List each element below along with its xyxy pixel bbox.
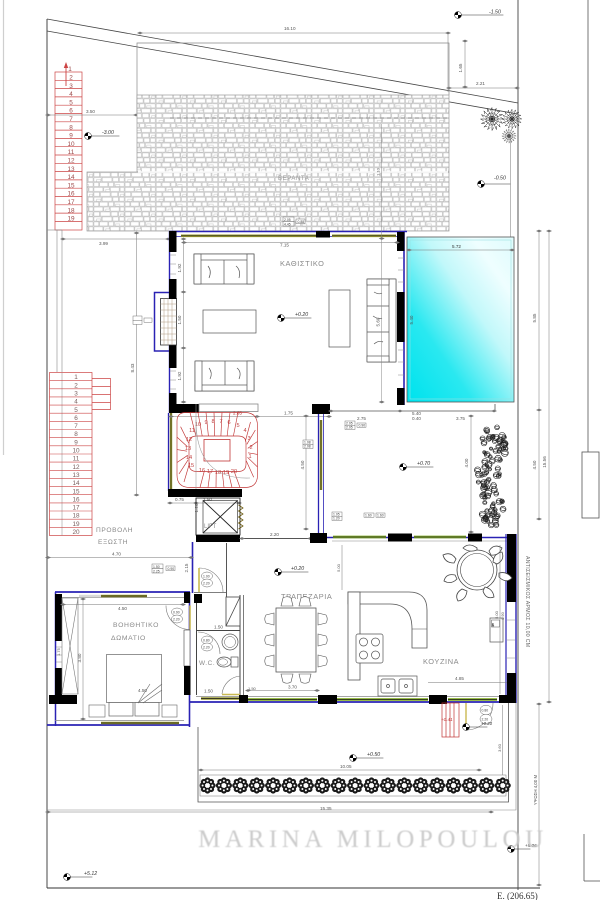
svg-text:1.20: 1.20	[333, 517, 340, 521]
svg-text:4.50: 4.50	[118, 606, 127, 611]
svg-text:+5.12: +5.12	[84, 871, 97, 877]
svg-text:0.90: 0.90	[359, 424, 366, 428]
svg-text:2.05: 2.05	[284, 218, 291, 222]
svg-text:10.05: 10.05	[340, 764, 352, 769]
svg-text:5.00: 5.00	[336, 563, 341, 572]
svg-text:2.15: 2.15	[184, 563, 189, 572]
svg-text:2: 2	[69, 75, 73, 82]
svg-text:15.35: 15.35	[320, 806, 332, 811]
svg-text:19: 19	[72, 521, 80, 528]
svg-text:5: 5	[69, 99, 73, 106]
svg-text:8.43: 8.43	[130, 363, 135, 372]
svg-text:9: 9	[74, 439, 78, 446]
svg-text:-3.00: -3.00	[102, 130, 114, 136]
svg-text:ΥΨΩΣΗ 4,00 Μ: ΥΨΩΣΗ 4,00 Μ	[533, 774, 538, 805]
svg-text:7: 7	[74, 423, 78, 430]
svg-text:13: 13	[67, 166, 75, 173]
svg-text:3: 3	[247, 436, 250, 442]
svg-text:4.00: 4.00	[464, 458, 469, 467]
svg-text:7.15: 7.15	[280, 243, 289, 248]
svg-text:ΔΩΜΑΤΙΟ: ΔΩΜΑΤΙΟ	[111, 635, 146, 642]
svg-text:3.60: 3.60	[497, 743, 502, 752]
svg-text:1.50: 1.50	[177, 315, 182, 324]
svg-text:3.50: 3.50	[86, 109, 95, 114]
svg-text:15: 15	[188, 463, 194, 469]
svg-text:11: 11	[73, 456, 80, 463]
svg-text:1.50: 1.50	[248, 686, 257, 691]
svg-text:13: 13	[72, 472, 80, 479]
svg-text:14: 14	[72, 480, 80, 487]
svg-text:19: 19	[67, 216, 75, 223]
svg-text:ΒΟΗΘΗΤΙΚΟ: ΒΟΗΘΗΤΙΚΟ	[113, 622, 159, 629]
svg-text:20: 20	[72, 529, 80, 536]
svg-text:1.92: 1.92	[177, 371, 182, 380]
svg-text:-1.50: -1.50	[489, 10, 501, 16]
svg-text:+0.20: +0.20	[295, 312, 308, 318]
svg-text:5.00: 5.00	[494, 610, 499, 619]
svg-text:4.50: 4.50	[138, 688, 147, 693]
svg-text:10: 10	[72, 448, 80, 455]
svg-text:2.20: 2.20	[203, 582, 210, 586]
svg-text:11: 11	[189, 428, 195, 434]
svg-text:1.20: 1.20	[194, 503, 199, 512]
svg-text:1.92: 1.92	[177, 263, 182, 272]
svg-text:10: 10	[67, 141, 75, 148]
svg-text:5.60: 5.60	[376, 317, 381, 326]
svg-text:LIFT: LIFT	[204, 524, 217, 530]
svg-text:5.72: 5.72	[452, 244, 461, 249]
svg-text:5.85: 5.85	[532, 313, 537, 322]
svg-text:17: 17	[72, 505, 80, 512]
svg-text:1.60: 1.60	[377, 514, 384, 518]
svg-text:4.50: 4.50	[300, 460, 305, 469]
svg-text:15: 15	[67, 182, 75, 189]
svg-text:14: 14	[186, 455, 192, 461]
svg-text:ΒΕΡΑΝΤΑ: ΒΕΡΑΝΤΑ	[278, 176, 309, 182]
svg-text:+0.70: +0.70	[417, 461, 430, 467]
svg-text:0.80: 0.80	[203, 639, 210, 643]
svg-text:1.00: 1.00	[203, 575, 210, 579]
svg-text:1: 1	[74, 374, 78, 381]
svg-text:7: 7	[219, 419, 222, 425]
svg-text:4.50: 4.50	[532, 460, 537, 469]
svg-text:12: 12	[186, 437, 192, 443]
svg-text:0.40: 0.40	[412, 416, 421, 421]
svg-text:4.70: 4.70	[112, 552, 121, 557]
svg-text:17: 17	[67, 199, 75, 206]
svg-text:1.75: 1.75	[284, 411, 293, 416]
svg-text:1.60: 1.60	[365, 514, 372, 518]
svg-text:0.90: 0.90	[168, 567, 175, 571]
svg-text:W.C.: W.C.	[199, 660, 215, 667]
svg-text:2.08: 2.08	[304, 445, 311, 449]
svg-text:-0.50: -0.50	[494, 176, 506, 182]
svg-text:3.99: 3.99	[99, 241, 108, 246]
svg-text:ΑΝΤΙΣΕΙΣΜΙΚΟΣ ΑΡΜΟΣ 10,00 CM: ΑΝΤΙΣΕΙΣΜΙΚΟΣ ΑΡΜΟΣ 10,00 CM	[524, 556, 530, 647]
svg-text:17: 17	[207, 469, 213, 475]
svg-text:16: 16	[67, 191, 75, 198]
svg-text:8: 8	[74, 431, 78, 438]
svg-text:1: 1	[492, 623, 494, 627]
svg-text:2.20: 2.20	[173, 618, 180, 622]
svg-text:1: 1	[68, 66, 72, 73]
svg-text:20: 20	[231, 469, 237, 475]
svg-text:1.75: 1.75	[56, 647, 61, 656]
svg-text:5: 5	[74, 407, 78, 414]
svg-text:13: 13	[185, 446, 191, 452]
svg-text:18: 18	[72, 513, 80, 520]
svg-text:ΠΡΟΒΟΛΗ: ΠΡΟΒΟΛΗ	[96, 527, 133, 534]
svg-text:+0.41: +0.41	[441, 717, 453, 722]
svg-text:1: 1	[248, 454, 251, 460]
svg-text:0.90: 0.90	[173, 611, 180, 615]
svg-text:9: 9	[69, 133, 73, 140]
svg-text:16: 16	[199, 468, 205, 474]
svg-text:ΕΞΩΣΤΗ: ΕΞΩΣΤΗ	[98, 539, 128, 546]
svg-text:3: 3	[69, 83, 73, 90]
svg-text:2: 2	[249, 445, 252, 451]
svg-text:4: 4	[69, 91, 73, 98]
svg-text:14: 14	[67, 174, 75, 181]
svg-text:2.20: 2.20	[203, 646, 210, 650]
svg-text:0.88: 0.88	[298, 220, 305, 224]
svg-text:6: 6	[69, 108, 73, 115]
svg-text:8: 8	[211, 419, 214, 425]
svg-text:4.85: 4.85	[455, 676, 464, 681]
svg-text:8: 8	[69, 124, 73, 131]
svg-text:12: 12	[67, 158, 75, 165]
svg-text:1.50: 1.50	[214, 625, 223, 630]
svg-text:7: 7	[69, 116, 73, 123]
svg-text:11: 11	[68, 149, 75, 156]
svg-text:0.90: 0.90	[501, 612, 505, 619]
svg-text:2.25: 2.25	[153, 569, 160, 573]
svg-text:15.56: 15.56	[542, 456, 547, 468]
svg-text:4: 4	[243, 428, 246, 434]
svg-text:ΚΟΥΖΙΝΑ: ΚΟΥΖΙΝΑ	[423, 657, 459, 666]
svg-text:18: 18	[215, 470, 221, 476]
svg-text:0.80: 0.80	[482, 709, 489, 713]
svg-text:+0.20: +0.20	[481, 721, 493, 726]
svg-text:Ε. (206.65): Ε. (206.65)	[497, 891, 538, 900]
svg-text:2.75: 2.75	[357, 416, 366, 421]
svg-text:2.20: 2.20	[270, 532, 279, 537]
svg-text:5: 5	[236, 423, 239, 429]
svg-text:2.05: 2.05	[346, 426, 353, 430]
svg-text:6: 6	[227, 420, 230, 426]
svg-text:12: 12	[72, 464, 80, 471]
svg-text:1.10: 1.10	[376, 167, 381, 176]
svg-text:2.21: 2.21	[476, 81, 485, 86]
svg-text:3.75: 3.75	[456, 416, 465, 421]
svg-text:5.40: 5.40	[412, 411, 421, 416]
svg-text:15: 15	[72, 488, 80, 495]
svg-text:ΚΑΘΙΣΤΙΚΟ: ΚΑΘΙΣΤΙΚΟ	[280, 259, 325, 268]
svg-text:6: 6	[74, 415, 78, 422]
svg-text:MARINA MILOPOULOU: MARINA MILOPOULOU	[198, 826, 548, 853]
svg-text:4.45: 4.45	[284, 222, 291, 226]
svg-text:3.80: 3.80	[77, 653, 82, 662]
svg-text:16: 16	[72, 496, 80, 503]
svg-text:16.10: 16.10	[284, 26, 296, 31]
svg-text:+0.50: +0.50	[367, 752, 380, 758]
svg-text:9: 9	[204, 420, 207, 426]
svg-text:1.50: 1.50	[153, 565, 160, 569]
svg-text:1.50: 1.50	[204, 689, 213, 694]
svg-text:1.65: 1.65	[458, 63, 463, 72]
svg-text:2: 2	[74, 382, 78, 389]
svg-text:5.40: 5.40	[409, 315, 414, 324]
svg-text:3: 3	[74, 391, 78, 398]
svg-text:0.75: 0.75	[175, 497, 184, 502]
svg-text:4: 4	[74, 399, 78, 406]
svg-text:+0.20: +0.20	[291, 566, 304, 572]
svg-text:3.70: 3.70	[288, 685, 297, 690]
svg-text:18: 18	[67, 207, 75, 214]
